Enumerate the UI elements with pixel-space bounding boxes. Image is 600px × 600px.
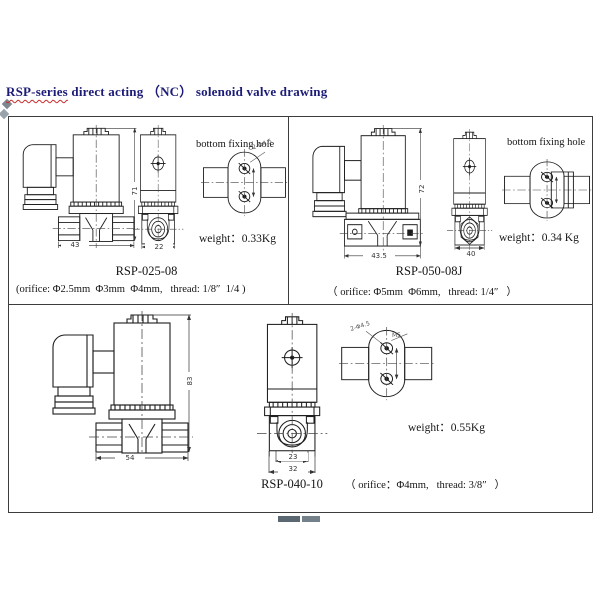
side-view-drawing: [53, 311, 193, 461]
fixing-hole-drawing: [339, 327, 434, 400]
panel-rsp-040-10: weight：0.55Kg RSP-040-10 （ orifice：Φ4mm,…: [9, 305, 592, 512]
dim-height-label: 83: [186, 372, 194, 390]
page-title: RSP-series direct acting （NC） solenoid v…: [6, 81, 327, 100]
valve-drawing-page: RSP-series direct acting （NC） solenoid v…: [0, 0, 600, 600]
fixing-hole-drawing: [201, 149, 288, 216]
front-view-drawing: [133, 125, 183, 250]
panel-rsp-025-08: bottom fixing hole weight：0.33Kg RSP-025…: [9, 117, 289, 305]
scrollbar-artifact-segment: [278, 516, 300, 522]
fixing-hole-drawing: [502, 159, 592, 221]
panel-rsp-050-08j: bottom fixing hole weight：0.34 Kg RSP-05…: [289, 117, 592, 305]
side-view-drawing: [313, 125, 424, 259]
scrollbar-artifact-segment: [302, 516, 320, 522]
dim-front-port-label: 23: [278, 453, 308, 461]
fixing-hole-label: bottom fixing hole: [507, 137, 585, 148]
title-rest: direct acting （NC） solenoid valve drawin…: [68, 84, 328, 99]
dim-front-width-label: 40: [456, 250, 486, 258]
dim-front-width-label: 22: [145, 243, 173, 251]
drawing-sheet: bottom fixing hole weight：0.33Kg RSP-025…: [8, 116, 593, 513]
spec-label: （ orifice：Φ4mm, thread: 3/8″ ）: [345, 477, 505, 492]
dim-width-label: 43: [61, 241, 89, 249]
title-highlight: RSP-series: [6, 84, 68, 99]
dim-width-label: 54: [115, 454, 145, 462]
weight-label: weight：0.33Kg: [199, 230, 276, 246]
front-view-drawing: [447, 129, 492, 251]
dim-height-label: 71: [131, 182, 139, 200]
spec-label: (orifice: Φ2.5mm Φ3mm Φ4mm, thread: 1/8″…: [16, 284, 245, 295]
side-view-drawing: [23, 125, 138, 248]
hole-note2-label: M5: [392, 332, 401, 339]
front-view-drawing: [257, 313, 327, 457]
model-label: RSP-050-08J: [344, 264, 514, 279]
weight-label: weight：0.34 Kg: [499, 229, 579, 245]
model-label: RSP-025-08: [64, 264, 229, 279]
dim-width-label: 43.5: [363, 252, 395, 260]
scrollbar-artifact: [278, 516, 320, 522]
spec-label: （ orifice: Φ5mm Φ6mm, thread: 1/4″ ）: [327, 284, 517, 299]
dim-front-width-label: 32: [278, 465, 308, 473]
dim-height-label: 72: [418, 180, 426, 198]
weight-label: weight：0.55Kg: [408, 419, 485, 435]
